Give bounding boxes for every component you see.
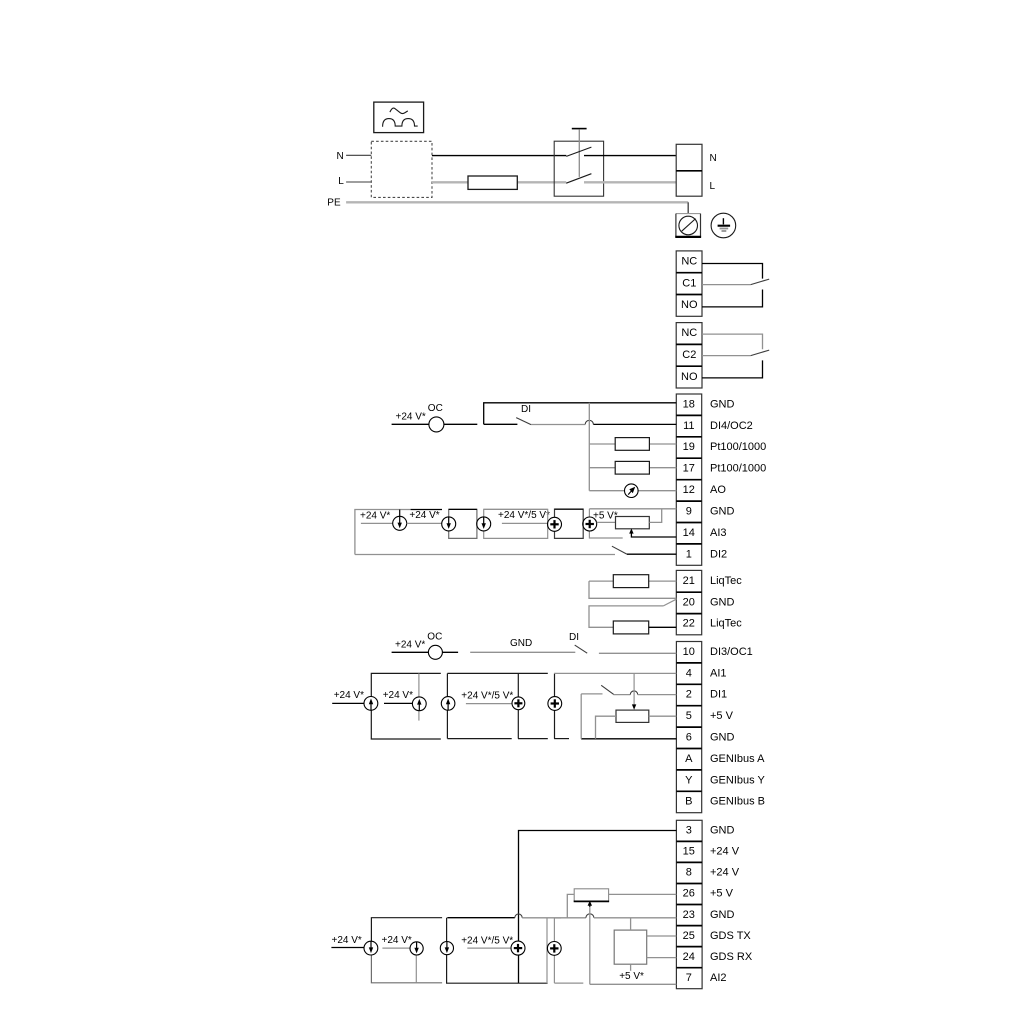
svg-text:14: 14	[683, 527, 695, 539]
svg-text:+24 V*/5 V*: +24 V*/5 V*	[461, 691, 513, 702]
svg-text:+24 V*: +24 V*	[382, 935, 412, 946]
svg-text:+24 V: +24 V	[710, 846, 740, 858]
svg-text:18: 18	[683, 398, 695, 410]
svg-text:19: 19	[683, 441, 695, 453]
svg-text:10: 10	[683, 646, 695, 658]
svg-text:GND: GND	[710, 596, 735, 608]
svg-text:N: N	[337, 151, 344, 162]
svg-text:GND: GND	[710, 825, 735, 837]
svg-text:23: 23	[683, 909, 695, 921]
svg-text:NC: NC	[681, 256, 697, 268]
svg-text:GND: GND	[710, 909, 735, 921]
svg-text:Y: Y	[685, 774, 693, 786]
svg-text:GDS RX: GDS RX	[710, 951, 753, 963]
svg-text:GND: GND	[710, 732, 735, 744]
svg-text:26: 26	[683, 888, 695, 900]
svg-text:C1: C1	[682, 277, 696, 289]
svg-text:4: 4	[686, 667, 692, 679]
svg-text:+5 V*: +5 V*	[619, 971, 644, 982]
svg-text:Pt100/1000: Pt100/1000	[710, 441, 766, 453]
svg-text:LiqTec: LiqTec	[710, 618, 742, 630]
svg-text:DI: DI	[569, 632, 579, 643]
svg-text:20: 20	[683, 596, 695, 608]
svg-text:A: A	[685, 753, 693, 765]
svg-text:+24 V*: +24 V*	[396, 411, 426, 422]
svg-text:AI2: AI2	[710, 972, 727, 984]
svg-text:12: 12	[683, 484, 695, 496]
svg-text:24: 24	[683, 951, 695, 963]
svg-text:5: 5	[686, 710, 692, 722]
svg-text:NO: NO	[681, 299, 698, 311]
svg-text:6: 6	[686, 732, 692, 744]
svg-text:DI4/OC2: DI4/OC2	[710, 420, 753, 432]
svg-text:DI: DI	[521, 404, 531, 415]
svg-text:11: 11	[683, 420, 694, 432]
svg-text:L: L	[710, 181, 716, 192]
svg-text:+5 V*: +5 V*	[593, 511, 618, 522]
svg-text:+24 V*/5 V*: +24 V*/5 V*	[461, 935, 513, 946]
svg-text:+24 V*/5 V*: +24 V*/5 V*	[498, 510, 550, 521]
svg-text:GENIbus Y: GENIbus Y	[710, 774, 765, 786]
svg-text:DI2: DI2	[710, 548, 727, 560]
svg-text:22: 22	[683, 618, 695, 630]
svg-text:8: 8	[686, 867, 692, 879]
svg-text:17: 17	[683, 463, 695, 475]
svg-text:B: B	[685, 796, 692, 808]
svg-text:+5 V: +5 V	[710, 888, 734, 900]
svg-text:N: N	[710, 153, 717, 164]
svg-text:OC: OC	[428, 403, 443, 414]
svg-text:+24 V: +24 V	[710, 867, 740, 879]
svg-text:GENIbus B: GENIbus B	[710, 796, 765, 808]
svg-text:+5 V: +5 V	[710, 710, 734, 722]
svg-text:1: 1	[686, 548, 692, 560]
svg-text:2: 2	[686, 689, 692, 701]
svg-text:DI3/OC1: DI3/OC1	[710, 646, 753, 658]
svg-text:DI1: DI1	[710, 689, 727, 701]
svg-text:7: 7	[686, 972, 692, 984]
svg-text:3: 3	[686, 825, 692, 837]
svg-text:C2: C2	[682, 349, 696, 361]
svg-text:+24 V*: +24 V*	[395, 639, 425, 650]
svg-text:L: L	[338, 176, 344, 187]
svg-text:+24 V*: +24 V*	[332, 935, 362, 946]
svg-text:25: 25	[683, 930, 695, 942]
svg-text:NC: NC	[681, 327, 697, 339]
svg-text:Pt100/1000: Pt100/1000	[710, 463, 766, 475]
svg-text:15: 15	[683, 846, 695, 858]
svg-text:PE: PE	[327, 198, 341, 209]
svg-text:9: 9	[686, 506, 692, 518]
svg-text:GND: GND	[510, 638, 532, 649]
svg-text:GDS TX: GDS TX	[710, 930, 751, 942]
svg-text:GND: GND	[710, 506, 735, 518]
svg-text:LiqTec: LiqTec	[710, 575, 742, 587]
svg-text:+24 V*: +24 V*	[360, 511, 390, 522]
svg-text:AI1: AI1	[710, 667, 727, 679]
svg-text:GND: GND	[710, 398, 735, 410]
svg-text:NO: NO	[681, 371, 698, 383]
svg-text:OC: OC	[427, 631, 442, 642]
svg-text:AO: AO	[710, 484, 726, 496]
svg-text:GENIbus A: GENIbus A	[710, 753, 765, 765]
svg-text:+24 V*: +24 V*	[334, 690, 364, 701]
svg-text:+24 V*: +24 V*	[383, 690, 413, 701]
svg-text:AI3: AI3	[710, 527, 727, 539]
svg-text:21: 21	[683, 575, 695, 587]
svg-text:+24 V*: +24 V*	[409, 510, 439, 521]
